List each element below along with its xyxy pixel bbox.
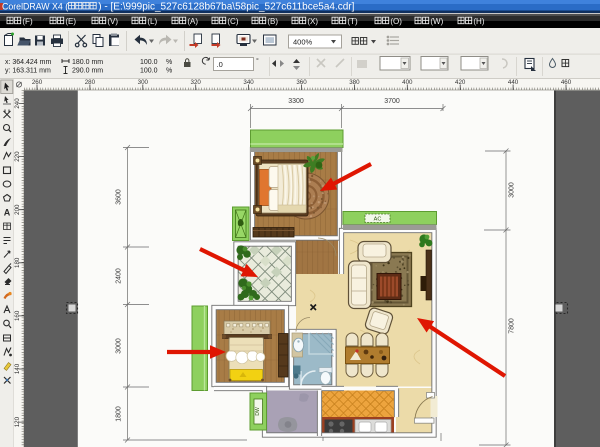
svg-text:420: 420 xyxy=(455,79,466,86)
svg-text:3000: 3000 xyxy=(509,182,516,198)
svg-text:A: A xyxy=(4,208,11,218)
svg-text:y: 163.311 mm: y: 163.311 mm xyxy=(5,68,51,75)
svg-text:(O): (O) xyxy=(390,17,402,26)
svg-text:°: ° xyxy=(256,57,259,65)
svg-text:120: 120 xyxy=(14,416,21,427)
svg-text:.0: .0 xyxy=(217,60,223,69)
svg-text:260: 260 xyxy=(32,79,43,86)
svg-text:280: 280 xyxy=(85,79,96,86)
svg-text:400: 400 xyxy=(402,79,413,86)
svg-text:x: 364.424 mm: x: 364.424 mm xyxy=(5,59,51,66)
svg-text:(T): (T) xyxy=(347,17,358,26)
svg-text:(E): (E) xyxy=(65,17,76,26)
svg-text:(X): (X) xyxy=(307,17,318,26)
svg-text:440: 440 xyxy=(508,79,519,86)
svg-text:240: 240 xyxy=(14,98,21,109)
svg-text:3600: 3600 xyxy=(116,189,123,205)
svg-text:100.0: 100.0 xyxy=(140,59,158,66)
svg-text:460: 460 xyxy=(561,79,572,86)
svg-text:(F): (F) xyxy=(22,17,33,26)
svg-text:380: 380 xyxy=(349,79,360,86)
svg-text:3700: 3700 xyxy=(384,98,400,105)
svg-text:2400: 2400 xyxy=(116,268,123,284)
svg-text:(A): (A) xyxy=(187,17,198,26)
svg-text:(C): (C) xyxy=(227,17,238,26)
svg-text:(H): (H) xyxy=(473,17,484,26)
svg-text:220: 220 xyxy=(14,151,21,162)
svg-text:180.0 mm: 180.0 mm xyxy=(72,59,103,66)
svg-text:3000: 3000 xyxy=(116,338,123,354)
svg-text:1800: 1800 xyxy=(116,406,123,422)
svg-text:100.0: 100.0 xyxy=(140,68,158,75)
svg-text:290.0 mm: 290.0 mm xyxy=(72,68,103,75)
svg-text:(W): (W) xyxy=(430,17,443,26)
svg-text:3300: 3300 xyxy=(288,98,304,105)
svg-text:7800: 7800 xyxy=(509,318,516,334)
svg-text:AC: AC xyxy=(374,217,382,223)
svg-text:360: 360 xyxy=(296,79,307,86)
svg-text:320: 320 xyxy=(191,79,202,86)
svg-text:%: % xyxy=(166,59,172,66)
svg-text:180: 180 xyxy=(14,257,21,268)
svg-text:340: 340 xyxy=(243,79,254,86)
svg-text:300: 300 xyxy=(138,79,149,86)
svg-text:) - [E:\999pic_527c6128b67ba\5: ) - [E:\999pic_527c6128b67ba\58pic_527c6… xyxy=(98,2,354,13)
svg-text:200: 200 xyxy=(14,204,21,215)
svg-text:CorelDRAW X4 (: CorelDRAW X4 ( xyxy=(2,2,68,12)
svg-text:160: 160 xyxy=(14,310,21,321)
svg-text:%: % xyxy=(166,68,172,75)
svg-text:DW: DW xyxy=(255,407,261,416)
svg-text:400%: 400% xyxy=(293,38,313,47)
svg-text:(L): (L) xyxy=(147,17,157,26)
svg-text:(B): (B) xyxy=(267,17,278,26)
svg-text:140: 140 xyxy=(14,363,21,374)
svg-text:(V): (V) xyxy=(107,17,118,26)
